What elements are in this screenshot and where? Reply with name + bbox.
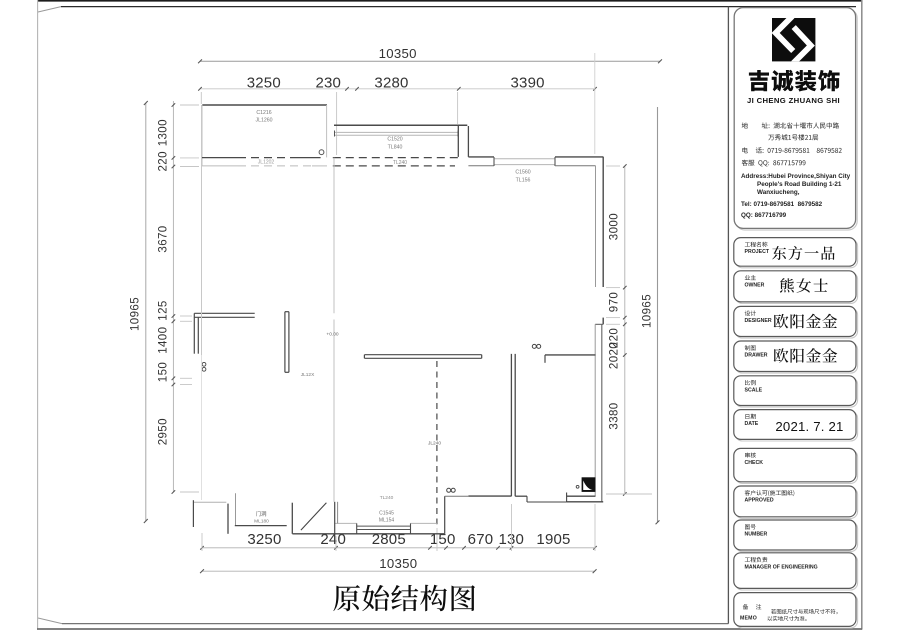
svg-text:Address:Hubei Province,Shiyan: Address:Hubei Province,Shiyan City (741, 173, 851, 180)
svg-text:670: 670 (468, 531, 494, 548)
svg-text:1400: 1400 (158, 327, 170, 354)
svg-text:10965: 10965 (642, 294, 654, 328)
svg-text:ML180: ML180 (254, 518, 269, 524)
svg-text:OWNER: OWNER (745, 282, 765, 288)
svg-text:Tel: 0719-8679581 8679582: Tel: 0719-8679581 8679582 (741, 201, 823, 208)
svg-text:ML154: ML154 (379, 518, 395, 524)
svg-text:C1560: C1560 (515, 170, 530, 176)
svg-text:People's Road Building 1-21: People's Road Building 1-21 (757, 181, 842, 188)
svg-text:MANAGER OF ENGINEERING: MANAGER OF ENGINEERING (745, 564, 818, 570)
svg-text:2020: 2020 (608, 342, 620, 369)
svg-text:JL240: JL240 (428, 441, 441, 447)
svg-text:MEMO: MEMO (740, 615, 757, 621)
svg-text:3380: 3380 (608, 402, 620, 429)
svg-text:10965: 10965 (130, 297, 142, 331)
svg-text:JL1260: JL1260 (255, 118, 272, 124)
svg-text:3250: 3250 (247, 531, 281, 548)
svg-text:3670: 3670 (158, 225, 170, 252)
svg-text:NUMBER: NUMBER (745, 532, 768, 538)
svg-text:220: 220 (158, 151, 170, 171)
svg-text:DRAWER: DRAWER (745, 353, 768, 359)
svg-text:2021. 7. 21: 2021. 7. 21 (775, 419, 843, 434)
svg-text:TL240: TL240 (393, 160, 407, 166)
svg-text:C1520: C1520 (387, 137, 402, 143)
svg-text:+0.00: +0.00 (326, 332, 338, 338)
svg-text:DATE: DATE (745, 421, 759, 427)
svg-text:2950: 2950 (158, 418, 170, 445)
svg-text:3000: 3000 (608, 213, 620, 240)
svg-text:JL12X: JL12X (301, 372, 315, 378)
svg-text:PROJECT: PROJECT (745, 249, 770, 255)
svg-text:150: 150 (158, 362, 170, 382)
svg-text:C1545: C1545 (379, 510, 394, 516)
svg-text:1300: 1300 (158, 119, 170, 146)
svg-text:TL156: TL156 (516, 177, 531, 183)
svg-text:C1216: C1216 (256, 110, 271, 116)
svg-text:DESIGNER: DESIGNER (745, 318, 772, 324)
svg-text:10350: 10350 (379, 556, 417, 571)
svg-text:970: 970 (608, 292, 620, 312)
svg-text:APPROVED: APPROVED (745, 498, 774, 504)
svg-text:JL1202: JL1202 (258, 159, 275, 165)
svg-text:CHECK: CHECK (745, 460, 764, 466)
svg-text:TL240: TL240 (380, 495, 394, 501)
svg-text:JI CHENG ZHUANG SHI: JI CHENG ZHUANG SHI (747, 96, 840, 105)
svg-text:1905: 1905 (536, 531, 570, 548)
svg-text:TL840: TL840 (388, 144, 403, 150)
svg-text:QQ: 867716799: QQ: 867716799 (741, 212, 787, 219)
svg-text:125: 125 (158, 300, 170, 320)
svg-text:Wanxiucheng,: Wanxiucheng, (757, 189, 800, 196)
svg-text:10350: 10350 (379, 46, 417, 61)
svg-text:SCALE: SCALE (745, 387, 763, 393)
